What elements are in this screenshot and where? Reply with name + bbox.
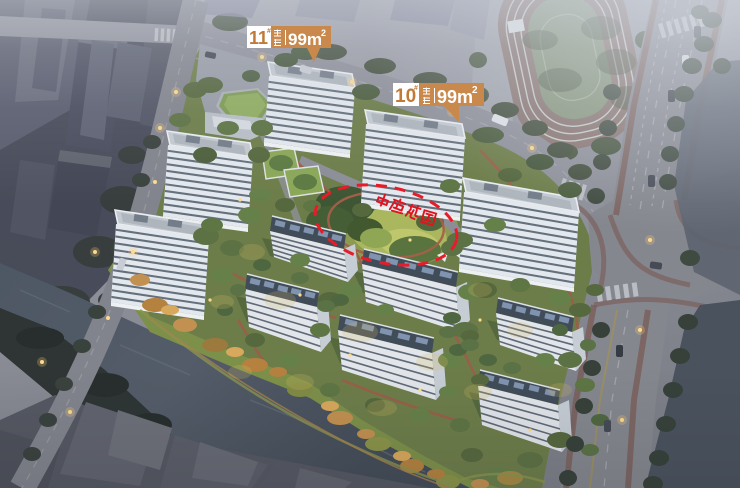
- svg-text:#: #: [267, 28, 271, 35]
- svg-text:99m: 99m: [288, 30, 322, 49]
- svg-text:2: 2: [321, 28, 326, 38]
- svg-text:10: 10: [395, 86, 416, 107]
- svg-text:2: 2: [472, 85, 478, 96]
- svg-text:#: #: [414, 85, 418, 92]
- svg-text:99m: 99m: [437, 87, 473, 107]
- svg-text:11: 11: [249, 28, 268, 48]
